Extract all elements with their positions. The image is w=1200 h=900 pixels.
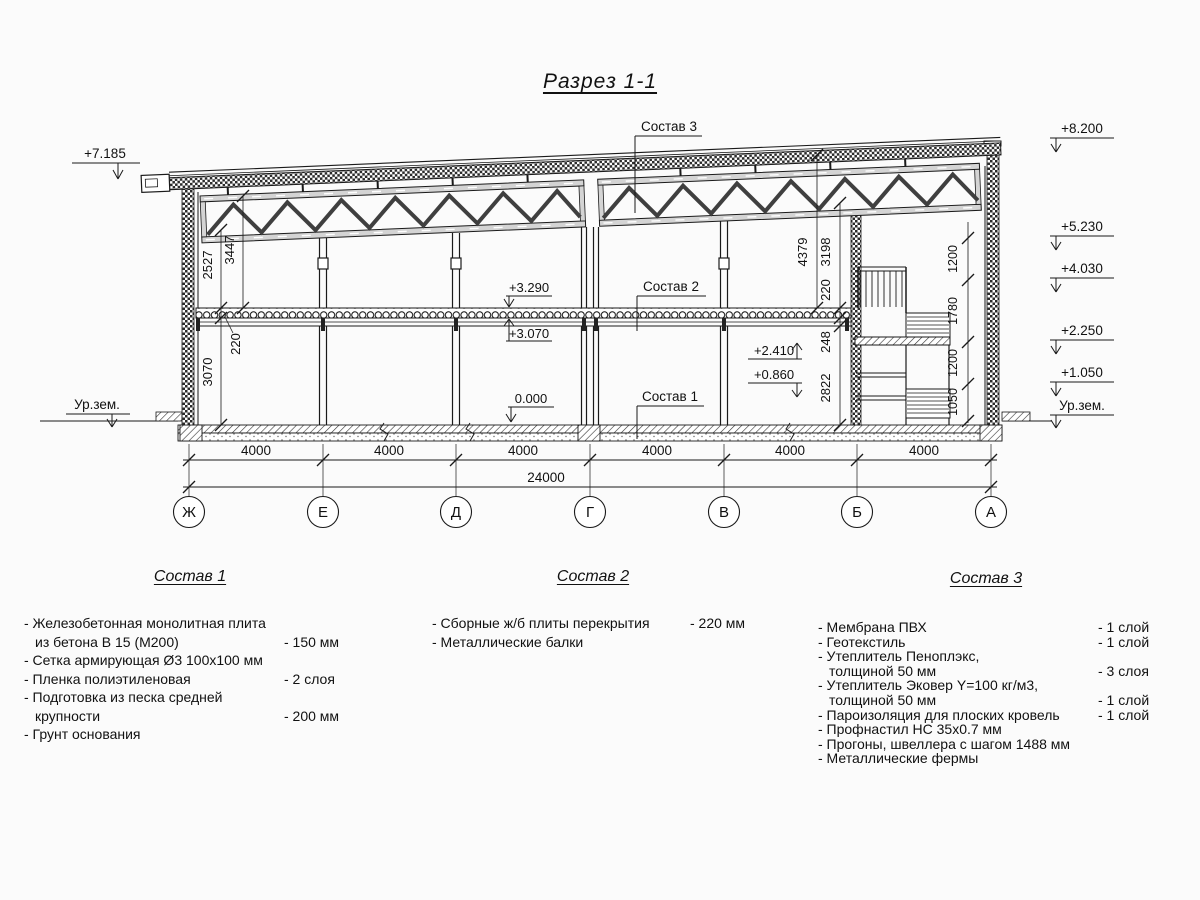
section-drawing: 1200 1780 1200 1050 2527 3447 220 3070 <box>0 0 1200 560</box>
dim-220-right: 220 <box>818 279 833 301</box>
dim-total: 24000 <box>527 470 565 485</box>
dim-chain-2: 1200 <box>946 349 960 377</box>
left-wall <box>182 188 194 425</box>
leader-sostav-3: Состав 3 <box>641 119 697 134</box>
list-item: - Сетка армирующая Ø3 100х100 мм <box>24 651 356 670</box>
mark-ground-left: Ур.зем. <box>74 397 120 412</box>
mark-0000: 0.000 <box>515 391 548 406</box>
dim-3198: 3198 <box>818 238 833 267</box>
mark-0860: +0.860 <box>754 367 794 382</box>
landing-slab <box>855 337 950 345</box>
leader-sostav-1: Состав 1 <box>642 389 698 404</box>
axis-label-4: В <box>719 504 729 521</box>
list-item: - Профнастил НС 35х0.7 мм <box>818 722 1154 737</box>
list-item: - Железобетонная монолитная плитаиз бето… <box>24 614 356 651</box>
axis-label-1: Е <box>318 504 328 521</box>
list-item: - Подготовка из песка среднейкрупности- … <box>24 688 356 725</box>
drawing-sheet: Разрез 1-1 <box>0 0 1200 900</box>
dim-3070: 3070 <box>200 358 215 387</box>
mark-ground-right: Ур.зем. <box>1059 398 1105 413</box>
axis-label-6: А <box>986 504 996 521</box>
leader-sostav-2: Состав 2 <box>643 279 699 294</box>
mark-4030: +4.030 <box>1061 261 1103 276</box>
list-item: - Металлические балки <box>432 633 754 652</box>
mark-5230: +5.230 <box>1061 219 1103 234</box>
dim-248: 248 <box>818 331 833 353</box>
axis-label-5: Б <box>852 504 862 521</box>
legend-title: Состав 2 <box>432 568 754 586</box>
list-item: - Пленка полиэтиленовая- 2 слоя <box>24 670 356 689</box>
dim-span-0: 4000 <box>241 443 271 458</box>
railing-balusters <box>860 271 902 307</box>
dim-2527: 2527 <box>200 251 215 280</box>
list-item: - Сборные ж/б плиты перекрытия- 220 мм <box>432 614 754 633</box>
right-elevation-marks: +8.200 +5.230 +4.030 +2.250 +1.050 Ур.зе… <box>1050 121 1114 428</box>
stair-wall <box>851 214 861 425</box>
roof-and-trusses <box>141 137 1003 245</box>
list-item: - Геотекстиль- 1 слой <box>818 635 1154 650</box>
mark-3070: +3.070 <box>509 326 549 341</box>
dim-span-5: 4000 <box>909 443 939 458</box>
dim-chain-3: 1050 <box>946 388 960 416</box>
dim-4379: 4379 <box>795 238 810 267</box>
mark-8200: +8.200 <box>1061 121 1103 136</box>
right-chain-dimension: 1200 1780 1200 1050 <box>946 222 974 427</box>
list-item: - Грунт основания <box>24 725 356 744</box>
mark-2410: +2.410 <box>754 343 794 358</box>
dim-2822: 2822 <box>818 374 833 403</box>
list-item: - Утеплитель Пеноплэкс,толщиной 50 мм- 3… <box>818 649 1154 678</box>
bottom-dimensions: 4000 4000 4000 4000 4000 4000 24000 <box>183 443 997 496</box>
legend-sostav-3: Состав 3 - Мембрана ПВХ- 1 слой - Геотек… <box>818 570 1154 766</box>
dim-span-1: 4000 <box>374 443 404 458</box>
legend-title: Состав 1 <box>24 568 356 586</box>
axis-label-2: Д <box>451 504 461 521</box>
dim-3447: 3447 <box>222 236 237 265</box>
legend-sostav-2: Состав 2 - Сборные ж/б плиты перекрытия-… <box>432 568 754 651</box>
mark-7185: +7.185 <box>84 146 126 161</box>
dim-span-3: 4000 <box>642 443 672 458</box>
left-elevation-marks: +7.185 Ур.зем. <box>66 146 140 427</box>
right-wall <box>987 146 999 425</box>
extension-lines <box>189 444 991 496</box>
list-item: - Прогоны, швеллера с шагом 1488 мм <box>818 737 1154 752</box>
list-item: - Пароизоляция для плоских кровель- 1 сл… <box>818 708 1154 723</box>
mark-3290: +3.290 <box>509 280 549 295</box>
list-item: - Мембрана ПВХ- 1 слой <box>818 620 1154 635</box>
legend-title: Состав 3 <box>818 570 1154 588</box>
dim-chain-1: 1780 <box>946 297 960 325</box>
axis-bubbles: Ж Е Д Г В Б А <box>174 497 1007 528</box>
axis-label-3: Г <box>586 504 594 521</box>
legend-sostav-1: Состав 1 - Железобетонная монолитная пли… <box>24 568 356 744</box>
staircase <box>855 267 950 425</box>
dim-chain-0: 1200 <box>946 245 960 273</box>
axis-label-0: Ж <box>182 504 196 521</box>
list-item: - Металлические фермы <box>818 751 1154 766</box>
dim-span-4: 4000 <box>775 443 805 458</box>
mark-1050: +1.050 <box>1061 365 1103 380</box>
dim-220-left: 220 <box>228 333 243 355</box>
mark-2250: +2.250 <box>1061 323 1103 338</box>
dim-span-2: 4000 <box>508 443 538 458</box>
list-item: - Утеплитель Эковер Y=100 кг/м3,толщиной… <box>818 678 1154 707</box>
